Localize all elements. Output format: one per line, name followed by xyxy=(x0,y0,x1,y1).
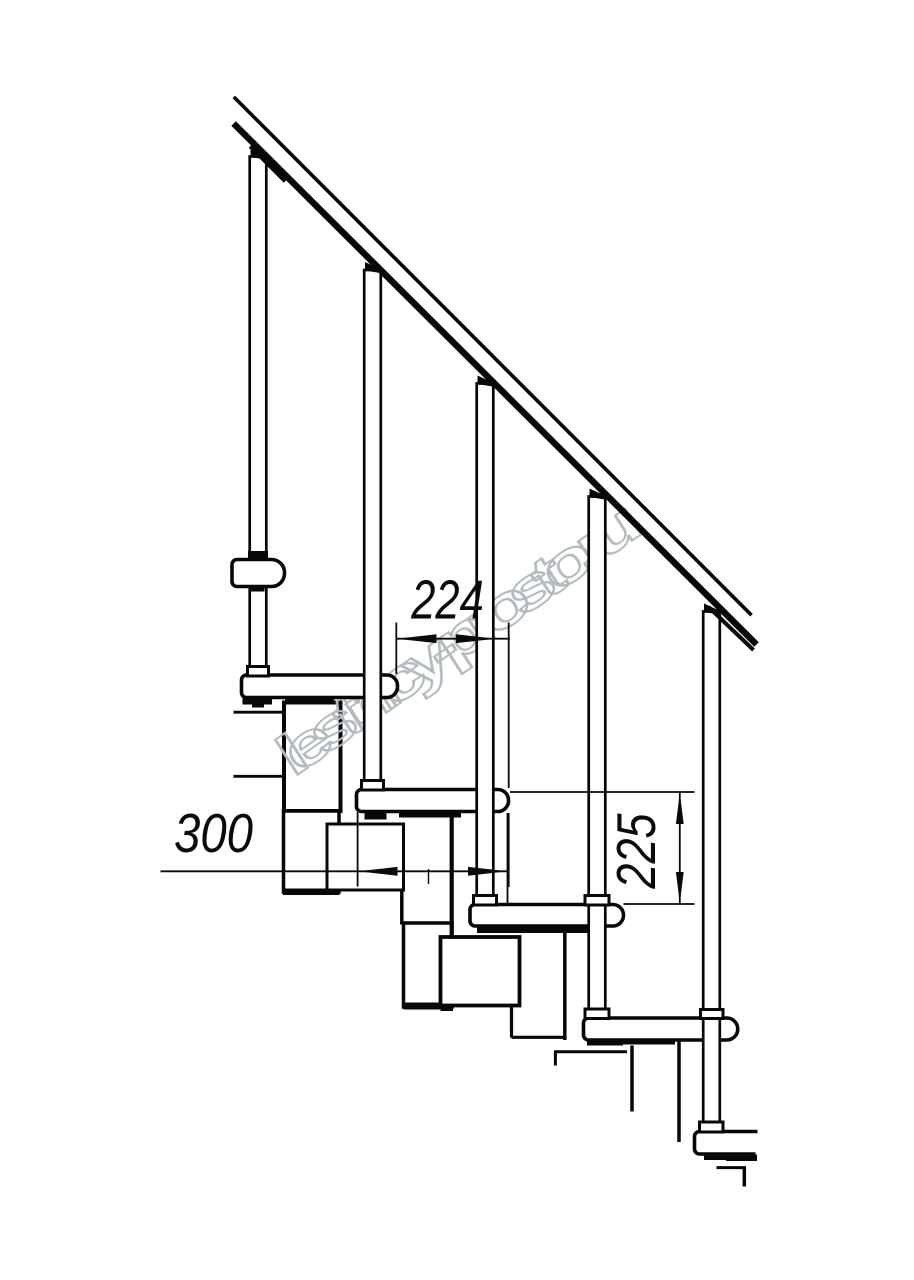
svg-text:300: 300 xyxy=(174,802,253,863)
svg-text:225: 225 xyxy=(605,812,667,889)
svg-text:224: 224 xyxy=(410,569,483,631)
